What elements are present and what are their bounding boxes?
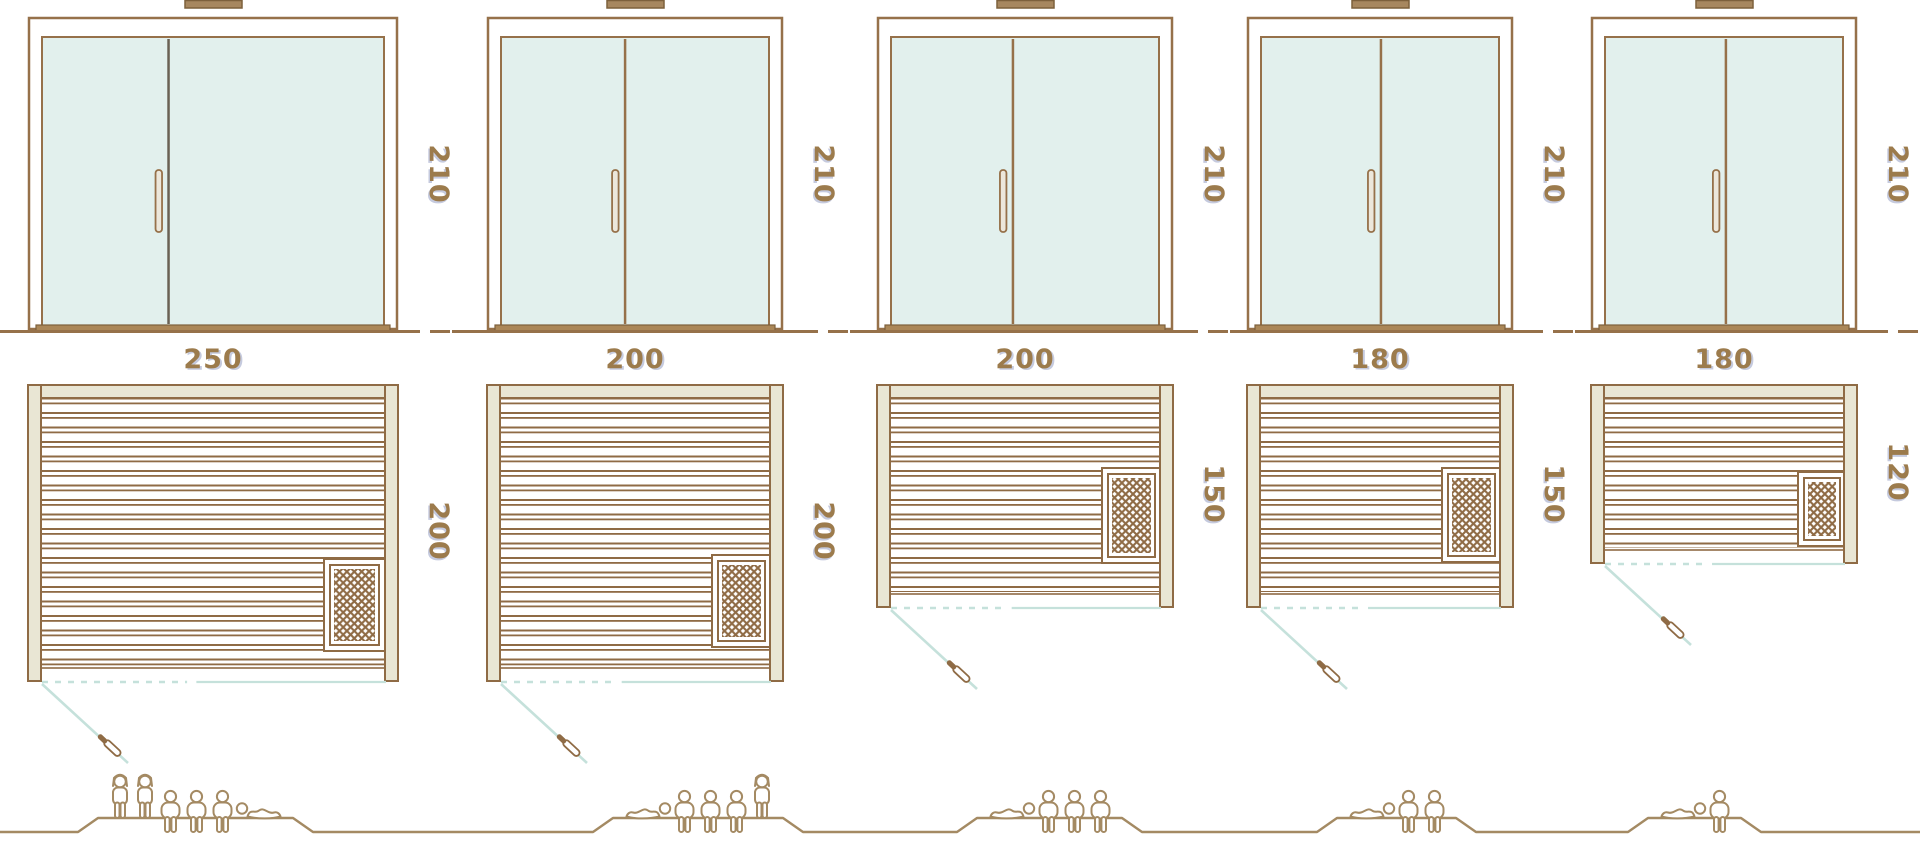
floor-plan-drawing [1244,383,1516,744]
roof-vent [1352,1,1409,9]
ground-line [1575,330,1888,333]
floor-plan-drawing [484,383,786,818]
floor-plan-drawing [1588,383,1860,700]
door-swing [42,684,128,763]
capacity-figures [850,766,1230,850]
door-handle [612,170,619,232]
heater-grid [1112,478,1151,553]
depth-dimension-label: 200 [422,466,454,596]
sauna-size-diagram: 210 250 [0,0,1920,856]
door-swing [1605,566,1691,645]
plan-bench [1798,472,1846,546]
ground-line-tick [430,330,450,333]
door-swing-handle [1659,615,1685,639]
ground-line [850,330,1198,333]
capacity-figures [1575,766,1920,850]
door-swing-handle [1315,659,1341,683]
door-elevation-drawing [1588,0,1860,340]
bench-platform-line [1575,818,1920,832]
ground-line-tick [1208,330,1228,333]
door-elevation-drawing [484,0,786,340]
depth-dimension-label: 150 [1197,429,1229,559]
door-swing-handle [96,733,122,757]
height-dimension-label: 210 [1537,109,1569,239]
height-dimension-label: 210 [1881,109,1913,239]
height-dimension-label: 210 [807,109,839,239]
glass-doors [501,37,769,326]
door-elevation-drawing [25,0,401,340]
width-dimension-label: 180 [1659,344,1789,376]
glass-doors [891,37,1159,326]
glass-doors [1605,37,1843,326]
door-handle [1000,170,1007,232]
heater-grid [1452,478,1491,552]
ground-line [0,330,420,333]
capacity-figures [1230,766,1575,850]
door-swing [501,684,587,763]
door-handle [1368,170,1375,232]
depth-dimension-label: 150 [1537,429,1569,559]
plan-bench [324,559,385,651]
width-dimension-label: 250 [148,344,278,376]
plan-bench [712,555,771,647]
depth-dimension-label: 120 [1881,407,1913,537]
height-dimension-label: 210 [422,109,454,239]
roof-vent [1696,1,1753,9]
capacity-figures [452,766,850,850]
heater-grid [1808,482,1836,536]
ground-line-tick [1898,330,1918,333]
door-swing-handle [555,733,581,757]
glass-doors [42,37,384,326]
heater-grid [722,565,761,637]
plan-bench [1102,468,1161,563]
capacity-figures [0,766,452,850]
roof-vent [185,1,242,9]
door-elevation-drawing [1244,0,1516,340]
roof-vent [997,1,1054,9]
ground-line-tick [1553,330,1573,333]
ground-line [452,330,818,333]
door-swing [891,610,977,689]
depth-dimension-label: 200 [807,466,839,596]
door-handle [156,170,163,232]
door-swing-handle [945,659,971,683]
door-elevation-drawing [874,0,1176,340]
bench-platform-line [452,818,850,832]
door-swing [1261,610,1347,689]
floor-plan-drawing [25,383,401,818]
ground-line-tick [828,330,848,333]
width-dimension-label: 180 [1315,344,1445,376]
plan-bench [1442,468,1501,562]
roof-vent [607,1,664,9]
width-dimension-label: 200 [960,344,1090,376]
width-dimension-label: 200 [570,344,700,376]
door-handle [1713,170,1720,232]
height-dimension-label: 210 [1197,109,1229,239]
bench-platform-line [850,818,1230,832]
heater-grid [334,569,375,641]
ground-line [1230,330,1543,333]
floor-plan-drawing [874,383,1176,744]
